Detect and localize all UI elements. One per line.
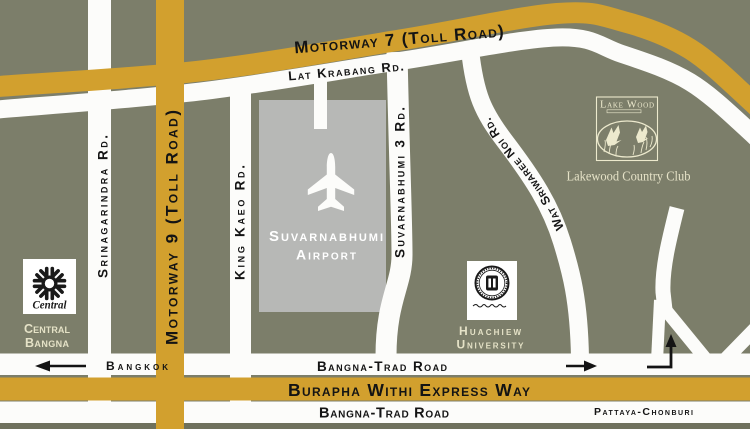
- svg-text:Srinagarindra Rd.: Srinagarindra Rd.: [96, 135, 111, 278]
- svg-text:Pattaya-Chonburi: Pattaya-Chonburi: [594, 406, 693, 418]
- svg-text:Lakewood Country Club: Lakewood Country Club: [567, 169, 691, 184]
- svg-text:Bangna-Trad Road: Bangna-Trad Road: [317, 359, 448, 374]
- svg-text:Lake Wood: Lake Wood: [600, 100, 654, 111]
- svg-text:Central: Central: [33, 300, 68, 312]
- svg-text:University: University: [457, 338, 525, 352]
- svg-text:King Kaeo Rd.: King Kaeo Rd.: [233, 165, 248, 280]
- svg-text:Suvarnabhumi 3 Rd.: Suvarnabhumi 3 Rd.: [393, 107, 408, 258]
- svg-text:Bangna-Trad Road: Bangna-Trad Road: [319, 406, 449, 422]
- svg-text:Airport: Airport: [296, 247, 356, 263]
- svg-text:Central: Central: [24, 322, 71, 336]
- svg-text:Suvarnabhumi: Suvarnabhumi: [269, 228, 383, 245]
- svg-text:Bangna: Bangna: [25, 336, 70, 350]
- svg-text:Motorway 9 (Toll Road): Motorway 9 (Toll Road): [163, 110, 182, 345]
- svg-text:Burapha Withi Express Way: Burapha Withi Express Way: [288, 380, 530, 400]
